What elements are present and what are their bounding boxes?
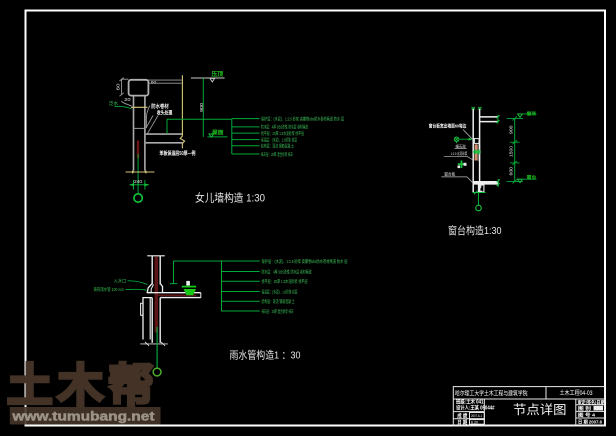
svg-text:土木帮: 土木帮: [7, 360, 159, 411]
svg-text:铸铁雨水管 100 mm: 铸铁雨水管 100 mm: [94, 286, 125, 293]
svg-text:审定(签名)日期: 审定(签名)日期: [578, 399, 605, 406]
svg-text:入水口: 入水口: [114, 277, 127, 283]
svg-text:抹灰层：20厚 混合砂浆 抹灰: 抹灰层：20厚 混合砂浆 抹灰: [261, 151, 293, 158]
svg-text:哈尔理工大学土木工程与建筑学院: 哈尔理工大学土木工程与建筑学院: [455, 390, 528, 398]
svg-text:泛水: 泛水: [109, 100, 119, 107]
svg-text:保温层：(水泥)、1:8珍珠 岩层: 保温层：(水泥)、1:8珍珠 岩层: [261, 136, 297, 143]
svg-text:防水层：4厚 SBS改性 防水层 卷材两道: 防水层：4厚 SBS改性 防水层 卷材两道: [261, 124, 308, 131]
svg-text:窗台板: 窗台板: [444, 170, 455, 176]
svg-text:900: 900: [509, 125, 514, 134]
svg-text:图 号 4: 图 号 4: [578, 412, 595, 419]
svg-text:窗顶: 窗顶: [527, 110, 537, 117]
svg-text:抹灰层：20厚 混合砂浆 抹灰: 抹灰层：20厚 混合砂浆 抹灰: [262, 308, 294, 315]
svg-text:60: 60: [116, 83, 121, 91]
svg-text:收头处理: 收头处理: [157, 109, 173, 117]
svg-text:图 别: 图 别: [578, 405, 591, 412]
svg-text:土木工程04-03: 土木工程04-03: [560, 389, 594, 397]
svg-text:保护层：(水泥)、1:2.5 砂浆 高聚物sbs防水卷材两道: 保护层：(水泥)、1:2.5 砂浆 高聚物sbs防水卷材两道 防水 层: [261, 115, 344, 122]
svg-text:900: 900: [199, 102, 204, 112]
svg-text:240: 240: [134, 179, 143, 184]
svg-text:防水卷材: 防水卷材: [151, 102, 169, 110]
svg-text:班级:土木 041: 班级:土木 041: [456, 399, 484, 406]
svg-text:1500: 1500: [509, 145, 514, 157]
svg-text:20: 20: [124, 97, 131, 102]
svg-text:防水层：4厚 SBS改性 防水层 卷材两道: 防水层：4厚 SBS改性 防水层 卷材两道: [262, 268, 312, 275]
svg-text:2007-6-1: 2007-6-1: [471, 414, 482, 418]
svg-text:结构层：现浇 钢筋混凝 土: 结构层：现浇 钢筋混凝 土: [261, 143, 294, 150]
svg-text:苯板保温层50厚—例: 苯板保温层50厚—例: [159, 150, 196, 157]
svg-text:日 期 2007.6: 日 期 2007.6: [578, 419, 602, 426]
svg-text:结构层：现浇 钢筋混凝 土: 结构层：现浇 钢筋混凝 土: [262, 298, 295, 305]
svg-text:保护层：(水泥)、1:2.5 砂浆 高聚物sbs防水卷材两道: 保护层：(水泥)、1:2.5 砂浆 高聚物sbs防水卷材两道 防水 层: [262, 258, 348, 265]
svg-text:窗台构造1:30: 窗台构造1:30: [448, 224, 502, 237]
svg-text:节点详图: 节点详图: [513, 402, 567, 417]
svg-text:雨水管构造1 ：30: 雨水管构造1 ：30: [230, 349, 301, 362]
svg-text:成 绩: 成 绩: [457, 412, 467, 419]
svg-text:找平层：20厚 1:3水泥砂浆 找平层: 找平层：20厚 1:3水泥砂浆 找平层: [261, 130, 304, 137]
svg-text:细石砼: 细石砼: [456, 144, 467, 149]
svg-text:设计人:王某 05044#: 设计人:王某 05044#: [456, 405, 495, 412]
svg-text:保温层：(水泥)、1:8珍珠 岩层: 保温层：(水泥)、1:8珍珠 岩层: [262, 288, 298, 295]
svg-text:1:2.5 水泥砂浆: 1:2.5 水泥砂浆: [451, 150, 468, 156]
svg-text:压顶: 压顶: [212, 70, 224, 78]
svg-text:屋面: 屋面: [212, 128, 224, 136]
svg-text:600: 600: [509, 166, 514, 175]
svg-text:60: 60: [151, 80, 157, 84]
svg-text:www.tumubang.net: www.tumubang.net: [11, 410, 155, 424]
svg-text:找平层：20厚 1:3水泥砂浆 找平层: 找平层：20厚 1:3水泥砂浆 找平层: [262, 278, 308, 285]
svg-text:窗台: 窗台: [527, 174, 537, 181]
svg-text:6.20: 6.20: [471, 420, 478, 424]
svg-text:日 期: 日 期: [457, 419, 467, 426]
svg-text:窗台板宽出墙面60每边: 窗台板宽出墙面60每边: [429, 123, 467, 130]
svg-text:女儿墙构造 1:30: 女儿墙构造 1:30: [195, 191, 265, 205]
